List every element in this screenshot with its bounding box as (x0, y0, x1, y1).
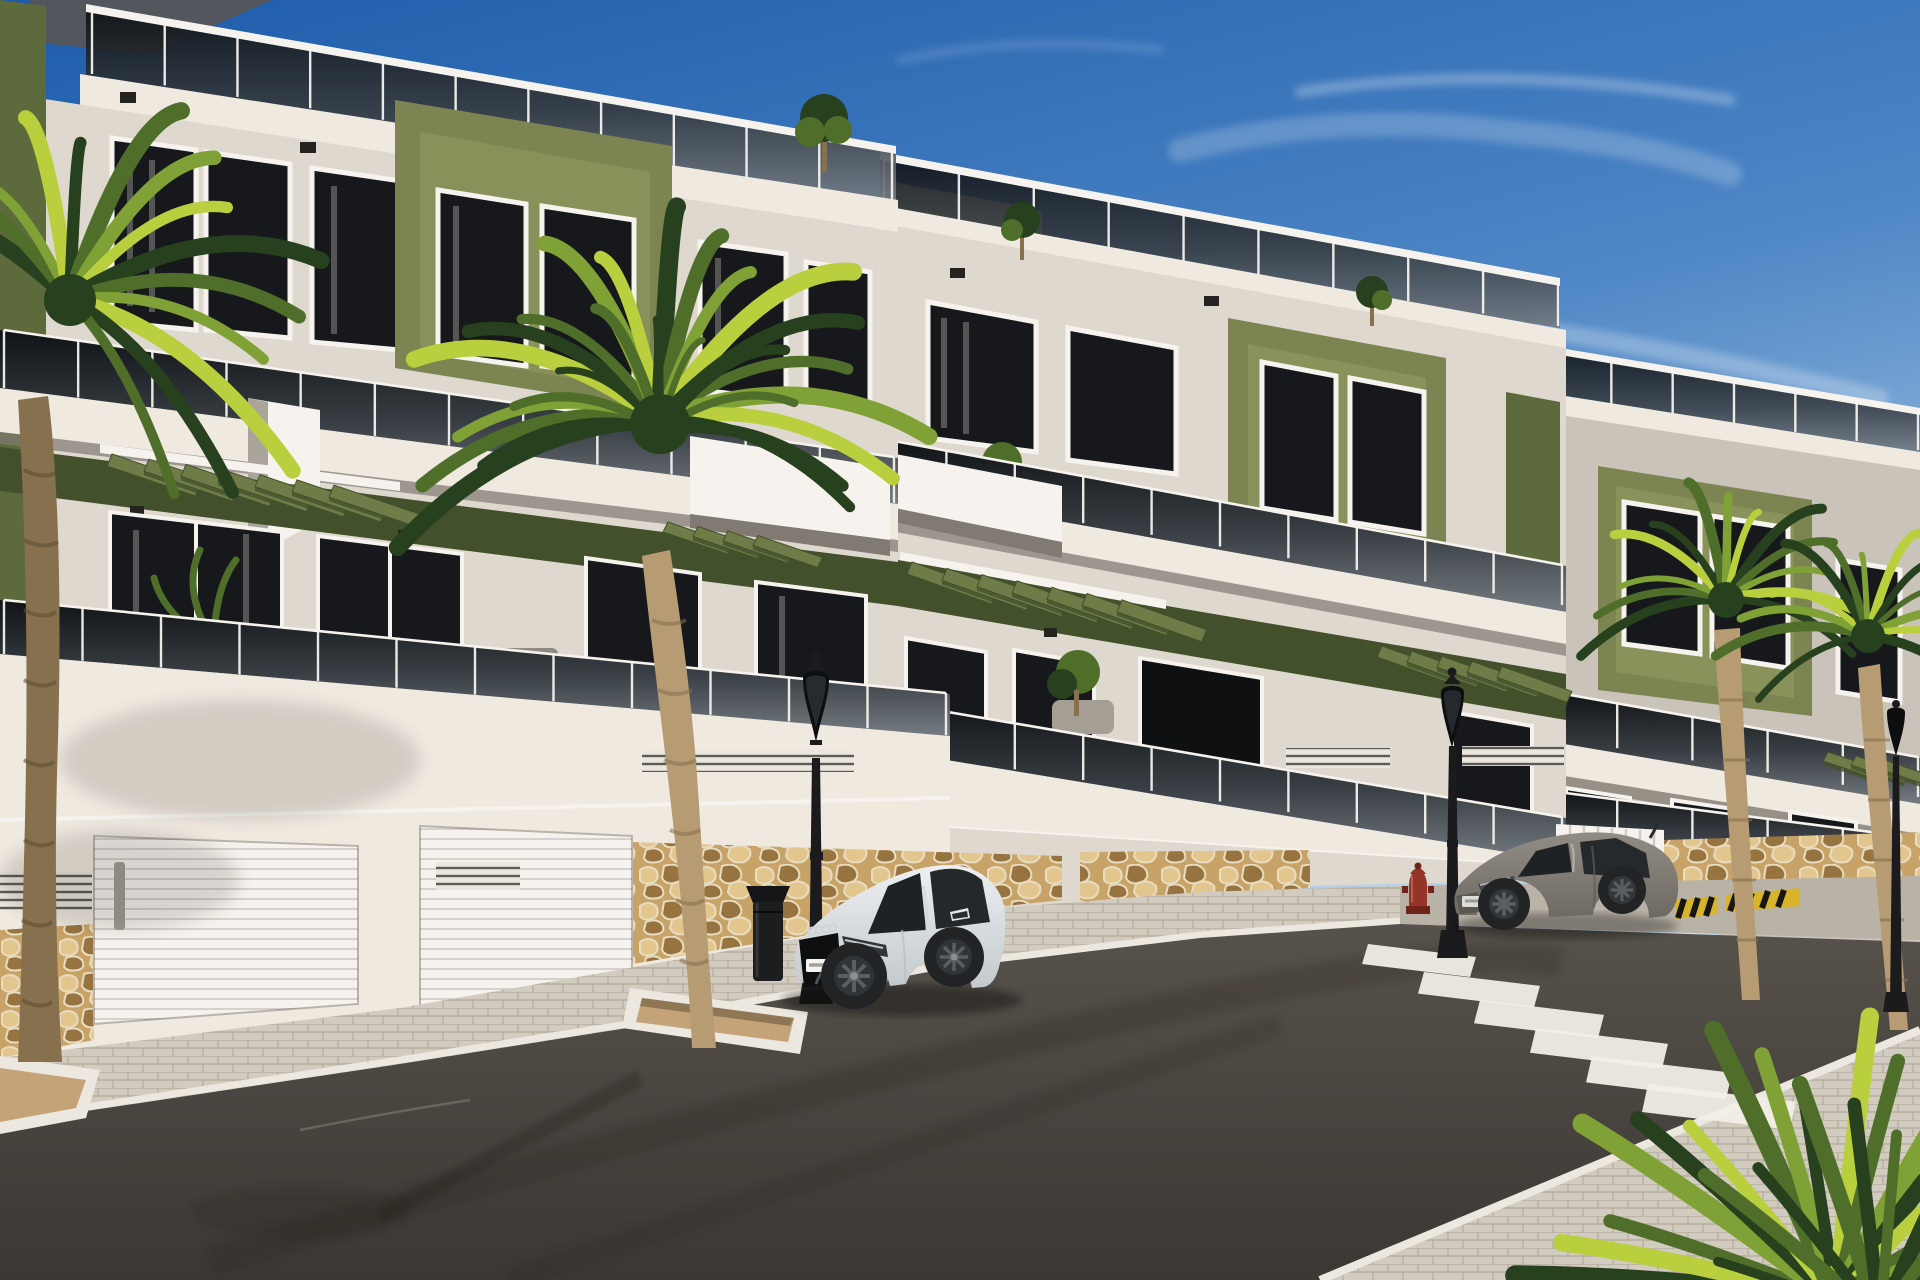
wall-lamp (1044, 628, 1057, 637)
wall-lamp (120, 92, 136, 103)
building-middle-block (856, 152, 1572, 920)
architectural-render (0, 0, 1920, 1280)
window (438, 190, 526, 366)
wall-lamp (950, 268, 965, 278)
scene-svg (0, 0, 1920, 1280)
vent-grille (1286, 748, 1390, 768)
vent-grille (436, 862, 520, 890)
window (1068, 328, 1176, 474)
car-shadow (782, 984, 1022, 1016)
window (1262, 362, 1336, 520)
terrace-sofa (1052, 700, 1114, 734)
vent-grille (1462, 746, 1564, 766)
wall-lamp (1204, 296, 1219, 306)
wall-lamp (300, 142, 316, 153)
window (1350, 378, 1424, 534)
